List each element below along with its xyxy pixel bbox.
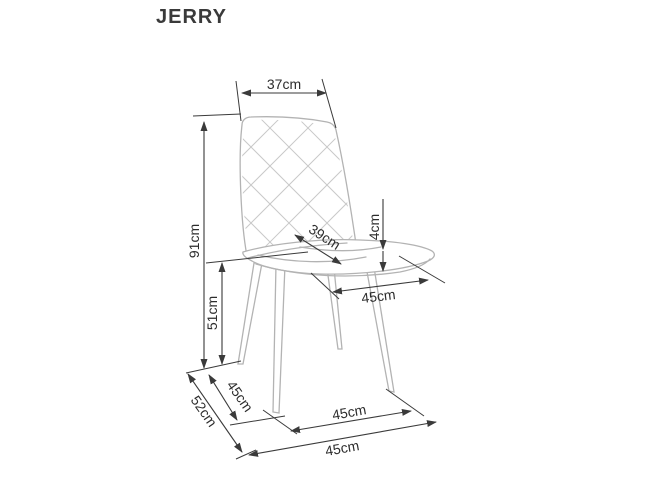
seat-width-label: 45cm bbox=[360, 286, 396, 306]
ext-floor-back-left bbox=[186, 361, 241, 373]
chair-leg-back-right bbox=[327, 268, 342, 349]
chair-leg-front-left bbox=[273, 264, 285, 413]
product-dimension-sheet: JERRY bbox=[0, 0, 648, 486]
ext-backrest-width-right bbox=[322, 79, 336, 128]
ext-overall-height-top bbox=[193, 114, 241, 116]
ext-backrest-width-left bbox=[236, 81, 241, 121]
overall-height-label: 91cm bbox=[186, 224, 202, 258]
seat-height-label: 51cm bbox=[204, 296, 220, 330]
base-depth-outer-label: 52cm bbox=[188, 393, 221, 430]
chair-illustration bbox=[100, 115, 478, 413]
backrest-width-label: 37cm bbox=[267, 76, 301, 92]
ext-front-left-foot-width bbox=[230, 416, 285, 425]
base-depth-inner-label: 45cm bbox=[224, 378, 257, 415]
chair-dimension-drawing: 37cm 91cm 51cm 39cm 4cm 45cm 52cm 45cm 4… bbox=[0, 0, 648, 486]
chair-leg-front-right bbox=[365, 261, 394, 392]
seat-thickness-label: 4cm bbox=[366, 214, 382, 240]
chair-leg-back-left bbox=[238, 263, 262, 364]
